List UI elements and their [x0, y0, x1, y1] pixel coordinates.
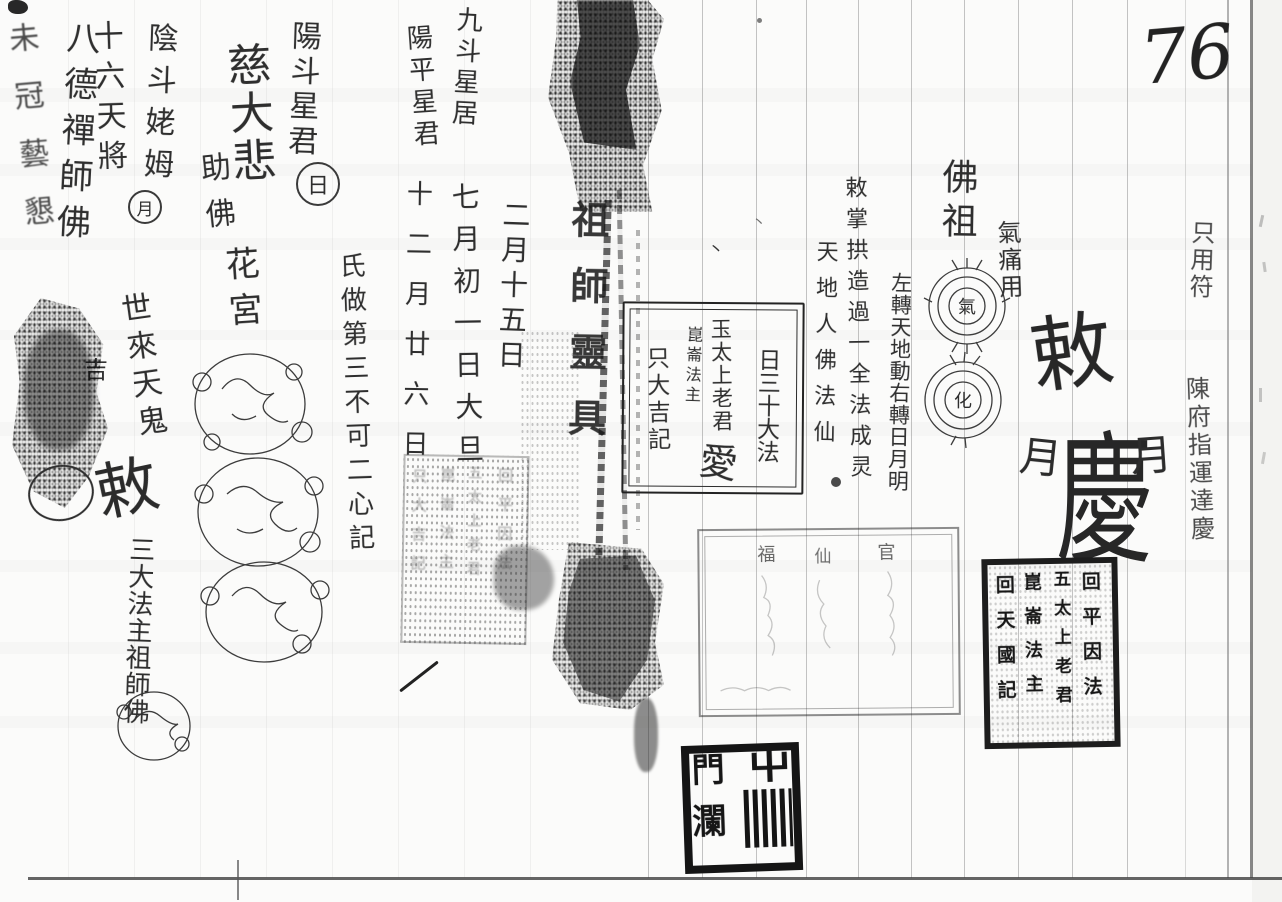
- deity-column: 未冠藝懇: [4, 21, 54, 255]
- ink-blob-tail: [634, 698, 658, 772]
- note-column: 氏做第三不可二心記: [337, 252, 374, 559]
- box-flourish-char: 愛: [696, 430, 741, 490]
- date-column: 七月初一日大旦: [449, 182, 482, 476]
- faint-seal-column: 崑崙法主: [437, 467, 454, 583]
- scanned-manuscript-page: 九斗星居 陽平星君 陽斗星君 日 慈大悲 助佛 陰斗姥姆 月 十六天將 八德禪師…: [0, 0, 1282, 902]
- hua-circle-talisman: 化: [918, 352, 1008, 448]
- edge-column: 只用符: [1187, 220, 1214, 302]
- black-seal-glyph: 門: [691, 753, 725, 787]
- circled-moon-glyph: 月: [128, 190, 162, 224]
- deity-column: 陽斗星君: [284, 20, 319, 161]
- stray-tick: 丶: [708, 236, 724, 260]
- deity-column: 陽平星君: [404, 23, 439, 153]
- ruled-line: [806, 0, 807, 878]
- margin-bleed-mark: [1259, 388, 1262, 402]
- dark-seal-column: 崑崙法主: [1022, 572, 1042, 708]
- dark-seal-column: 回平因法: [1080, 571, 1101, 711]
- stray-speck: [757, 18, 762, 23]
- faint-seal-column: 五太上老君: [465, 465, 481, 585]
- black-seal-glyph: 屮: [746, 748, 792, 786]
- deity-column: 九斗星居: [449, 5, 481, 130]
- stray-tick: 丶: [752, 212, 766, 232]
- faint-seal-column: 回平因法: [495, 468, 512, 584]
- deity-column: 陰斗姥姆: [139, 22, 175, 191]
- dark-seal-column: 回天國記: [994, 575, 1015, 715]
- ruled-line: [911, 0, 912, 878]
- page-number: 76: [1136, 8, 1237, 102]
- circled-sun-glyph: 日: [296, 162, 340, 206]
- faint-seal-column: 只大吉記: [409, 468, 426, 584]
- black-seal-stripes: [743, 788, 793, 848]
- qi-use-column: 氣痛用: [995, 220, 1022, 302]
- dark-seal: 回平因法 五太上老君 崑崙法主 回天國記: [981, 557, 1120, 749]
- chant-column: 敕掌拱造過一全法成灵: [842, 176, 869, 486]
- box-column: 日三十大法: [753, 348, 778, 463]
- deity-column: 八德禪師佛: [52, 19, 98, 250]
- black-seal: 屮 門 瀾: [681, 742, 803, 874]
- page-edge-line: [1250, 0, 1253, 878]
- box-column: 崑崙法主: [683, 326, 702, 407]
- box-column: 只大吉記: [643, 346, 668, 454]
- bottom-scan-line: [28, 877, 1282, 880]
- page-margin-right: [1252, 0, 1282, 902]
- deity-column: 助佛: [195, 151, 234, 246]
- binding-stain-core: [570, 0, 640, 150]
- corner-ink-speck: [8, 0, 28, 14]
- master-column: 祖師靈具: [564, 200, 607, 465]
- stamp-faint-writing: [699, 529, 959, 715]
- date-column: 二月十五日: [495, 200, 529, 376]
- buddha-column: 佛祖: [937, 158, 975, 247]
- faint-seal: 回平因法 五太上老君 崑崙法主 只大吉記: [400, 454, 529, 645]
- chant-column: 天地人佛法仙: [810, 240, 836, 456]
- dharma-column: 三大法主祖師佛: [121, 536, 154, 726]
- bottom-tick-mark: [237, 860, 239, 900]
- black-seal-glyph: 瀾: [692, 805, 727, 840]
- ink-dot: [831, 477, 841, 487]
- dark-seal-column: 五太上老君: [1051, 570, 1071, 715]
- chant-column: 左轉天地動右轉日月明: [886, 272, 911, 492]
- flower-column: 花宮: [221, 245, 261, 339]
- page-edge-line: [1227, 0, 1229, 878]
- hua-circle-char: 化: [954, 391, 972, 412]
- faint-stamp: 福 仙 官: [697, 527, 961, 717]
- box-column: 玉太上老君: [709, 318, 732, 433]
- diagonal-stroke: [399, 661, 439, 693]
- talisman-circle-chain: [182, 344, 342, 674]
- scan-band: [0, 238, 1282, 250]
- ink-blot-core: [24, 330, 94, 450]
- date-column: 十二月廿六日: [399, 180, 430, 480]
- edge-column: 陳府指運達慶: [1183, 376, 1213, 545]
- talisman-right-char: 月: [1128, 421, 1174, 485]
- qi-circle-char: 氣: [958, 297, 976, 318]
